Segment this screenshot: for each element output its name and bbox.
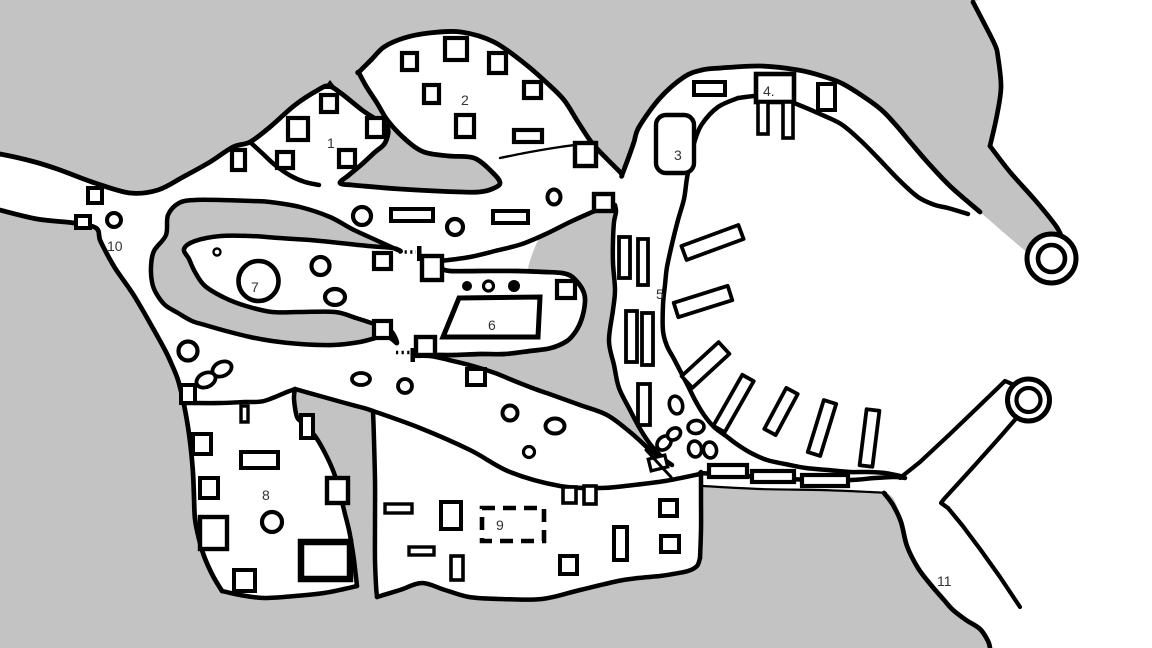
svg-text:2: 2 xyxy=(461,92,469,108)
svg-text:10: 10 xyxy=(107,238,123,254)
svg-text:1: 1 xyxy=(327,135,335,151)
svg-text:7: 7 xyxy=(251,279,259,295)
svg-text:5: 5 xyxy=(656,286,664,302)
svg-text:6: 6 xyxy=(488,317,496,333)
svg-text:8: 8 xyxy=(262,487,270,503)
svg-text:4.: 4. xyxy=(763,83,775,99)
svg-text:11: 11 xyxy=(937,573,952,589)
svg-text:3: 3 xyxy=(674,147,682,163)
svg-text:9: 9 xyxy=(496,517,504,533)
